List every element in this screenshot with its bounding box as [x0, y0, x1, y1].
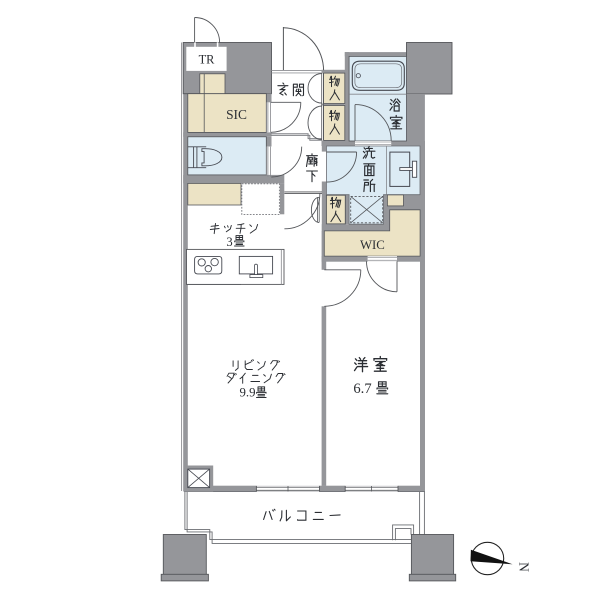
svg-text:9.9: 9.9 [240, 386, 256, 400]
svg-text:6.7: 6.7 [353, 381, 371, 397]
svg-text:WIC: WIC [360, 238, 385, 252]
svg-text:SIC: SIC [226, 107, 247, 122]
svg-text:TR: TR [199, 53, 216, 67]
svg-text:N: N [517, 562, 532, 572]
svg-text:3: 3 [226, 235, 232, 249]
